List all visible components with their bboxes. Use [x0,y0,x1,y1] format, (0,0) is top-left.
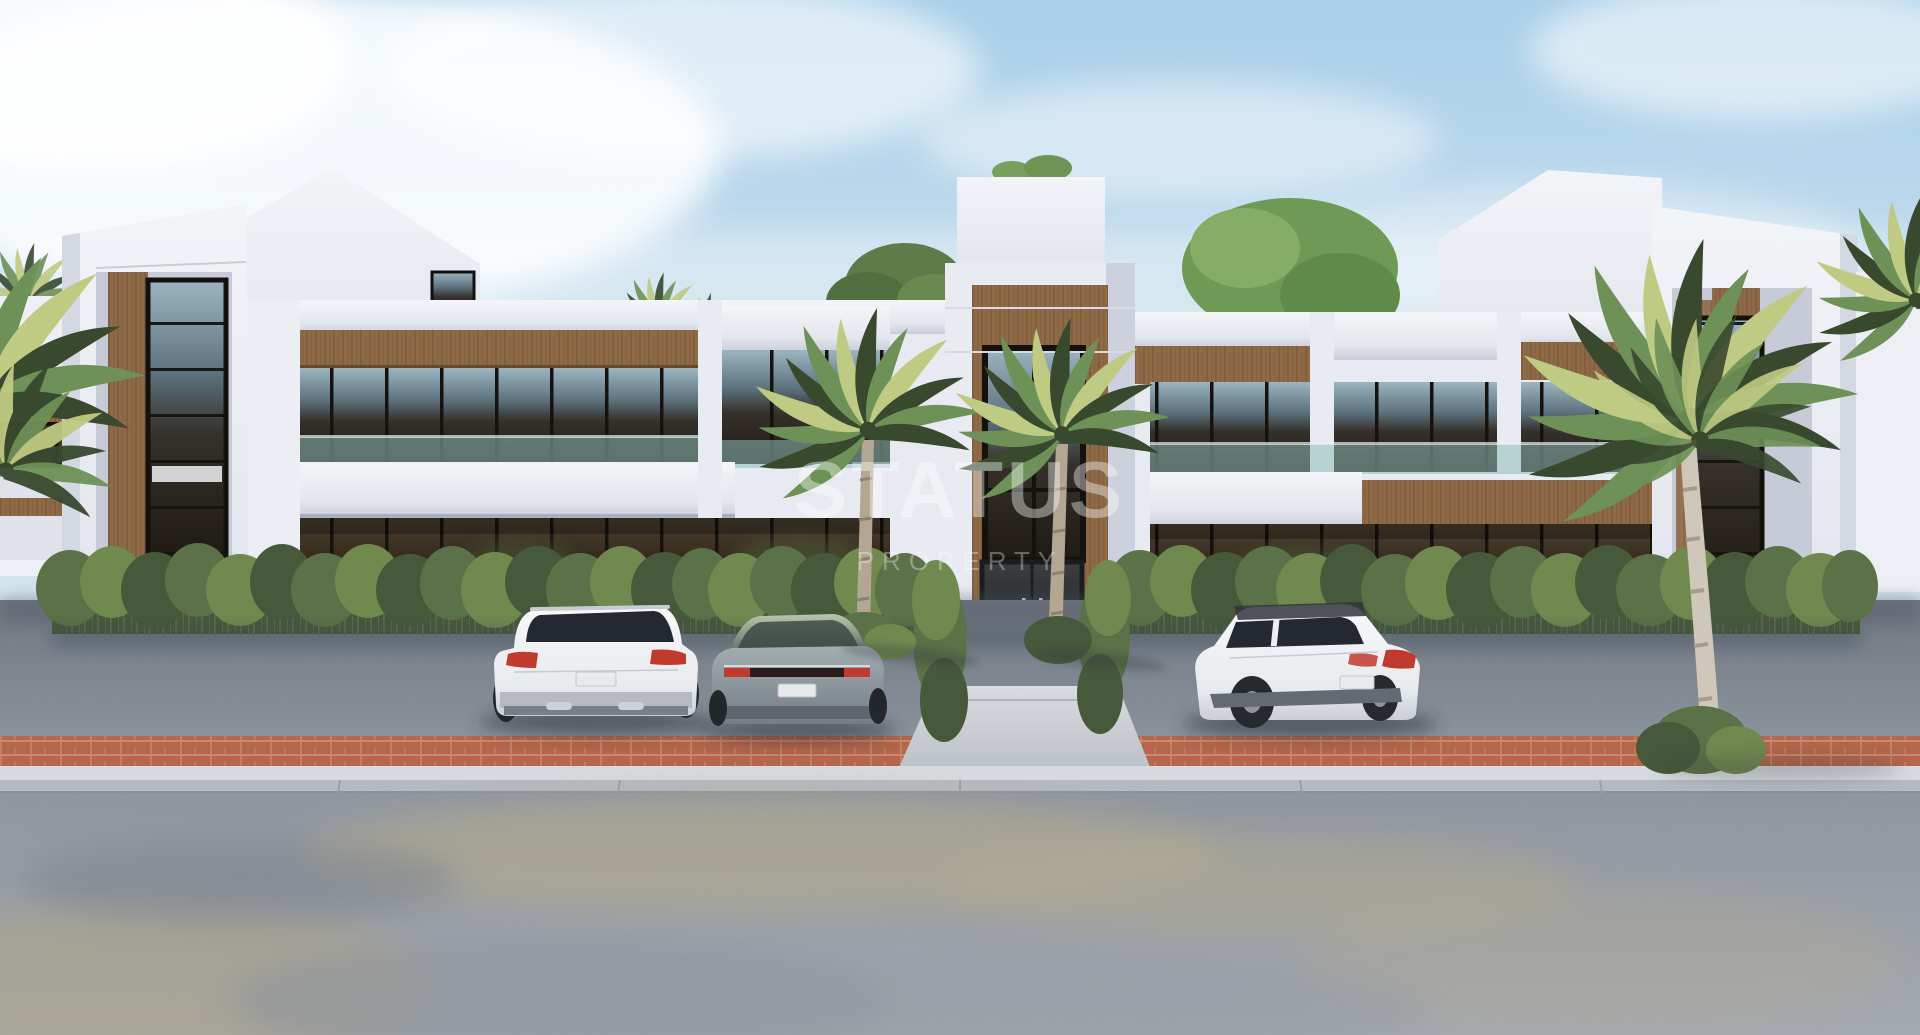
diffuser [718,706,878,719]
bumper [500,692,692,708]
taillight [506,652,538,668]
taillight [1348,653,1378,666]
render-image: STATUS PROPERTY [0,0,1920,1035]
scene-canvas [0,0,1920,1035]
license-plate [778,684,816,697]
exhaust [618,702,644,710]
license-plate [576,672,616,686]
parapet-box [1331,315,1521,360]
side-windows [1226,617,1364,648]
balcony-slab [262,462,735,518]
window-reflection [152,466,222,482]
left-tower [62,204,252,588]
wood-fascia [1135,346,1331,384]
road [0,793,1920,1035]
exhaust [546,702,572,710]
cloud [1530,0,1920,120]
balcony-slab [1150,472,1362,528]
glass-railing [300,437,717,466]
curb [0,766,1920,796]
tower-top-box [957,177,1105,265]
license-plate [1340,676,1374,689]
wood-fascia [285,330,717,368]
rear-window [526,611,674,642]
